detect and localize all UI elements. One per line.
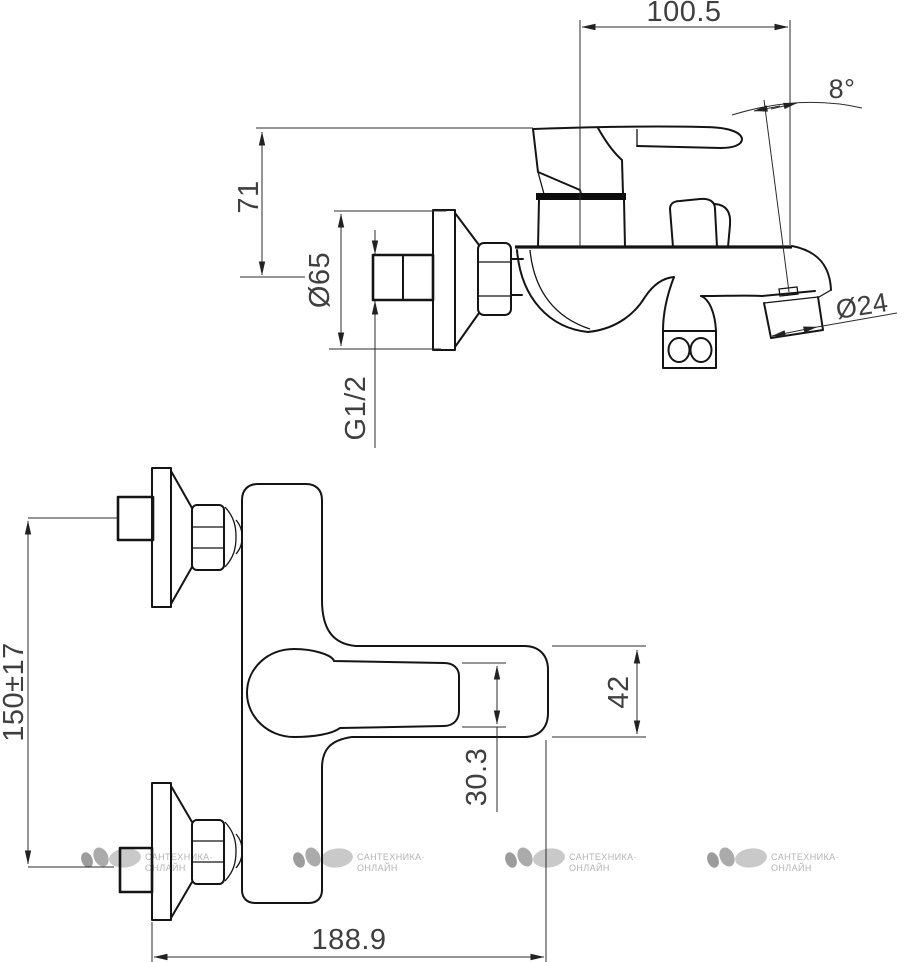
watermark-text-line1: САНТЕХНИКА·: [771, 852, 839, 862]
front-handle-lever: [247, 649, 459, 737]
dim-label-inlet-spacing: 150±17: [0, 642, 30, 742]
cartridge-seam-band: [536, 193, 626, 200]
body-bowl-outer: [517, 250, 674, 332]
aerator-rim-edge: [764, 297, 818, 303]
dim-label-connection-thread: G1/2: [340, 376, 372, 441]
watermark-text-line1: САНТЕХНИКА·: [145, 852, 213, 862]
handle-left-edge: [533, 129, 581, 194]
side-view: [373, 127, 831, 368]
extension-lines: [329, 211, 446, 349]
watermark-text-line1: САНТЕХНИКА·: [569, 852, 637, 862]
watermark-text-line2: ОНЛАЙН: [771, 862, 812, 873]
hex-nut-facets-side: [479, 262, 510, 296]
dim-spout-reach: 100.5: [580, 0, 790, 247]
escutcheon-top: [152, 468, 171, 607]
dim-label-spout-reach: 100.5: [646, 0, 721, 28]
dim-spout-angle: 8°: [732, 74, 862, 292]
escutcheon-cone-side: [455, 213, 479, 347]
spout-aerator-joint: [819, 290, 831, 297]
body-bowl-inner: [530, 250, 590, 329]
watermark-logo-icon: [705, 845, 768, 870]
shower-outlet: [663, 331, 716, 368]
handle-foot-line: [538, 172, 544, 194]
dim-label-handle-height: 71: [233, 180, 265, 213]
body-underside: [517, 250, 762, 332]
angle-arc: [732, 102, 862, 115]
escutcheon-side: [433, 210, 455, 350]
hex-nut-top: [192, 505, 224, 570]
watermark-text-line2: ОНЛАЙН: [569, 862, 610, 873]
drawing-svg: САНТЕХНИКА· ОНЛАЙН САНТЕХНИКА· ОНЛАЙН СА…: [0, 0, 904, 962]
diverter-knob: [670, 199, 730, 247]
watermark: САНТЕХНИКА· ОНЛАЙН: [291, 845, 425, 873]
outlet-right-slope: [701, 296, 716, 331]
watermark-text-line2: ОНЛАЙН: [357, 862, 398, 873]
cartridge-collar: [538, 200, 625, 247]
dim-label-aerator-diameter: Ø24: [834, 287, 891, 325]
escutcheon-cone-top: [171, 471, 192, 604]
dim-label-escutcheon-diameter: Ø65: [304, 252, 336, 308]
front-body-outline: [242, 484, 548, 903]
wall-stub-top: [118, 497, 153, 540]
shower-outlet-port-right: [691, 338, 712, 362]
dim-label-spout-body-height: 42: [603, 675, 635, 708]
dim-spout-body-height: 42: [552, 646, 646, 737]
dim-label-handle-end-width: 30.3: [461, 748, 493, 806]
shower-outlet-port-left: [669, 338, 690, 362]
watermark-logo-icon: [503, 845, 566, 870]
watermark-text-line1: САНТЕХНИКА·: [357, 852, 425, 862]
extension-lines: [462, 663, 506, 727]
dim-label-overall-length: 188.9: [311, 924, 386, 956]
hex-nut-side: [478, 243, 511, 315]
extension-lines: [580, 20, 790, 247]
dimension-layer: 100.5 8° 71 Ø65 G1/2: [0, 0, 897, 962]
connector-sleeve-top-outer: [225, 507, 236, 567]
connector-sleeve-bottom-outer: [225, 822, 236, 881]
angle-reference-line: [764, 100, 789, 292]
watermark: САНТЕХНИКА· ОНЛАЙН: [503, 845, 637, 873]
inlet-top: [118, 468, 242, 607]
hex-nut-facets-top: [193, 527, 223, 548]
spout-curve: [792, 246, 831, 290]
extension-lines: [28, 518, 118, 867]
dim-label-spout-angle: 8°: [829, 74, 856, 104]
outlet-left-slope: [663, 277, 674, 331]
handle-side: [533, 127, 742, 194]
technical-drawing-sheet: САНТЕХНИКА· ОНЛАЙН САНТЕХНИКА· ОНЛАЙН СА…: [0, 0, 904, 962]
diverter-knob-body: [670, 199, 717, 247]
watermark: САНТЕХНИКА· ОНЛАЙН: [705, 845, 839, 873]
dim-connection-thread: G1/2: [340, 230, 375, 448]
spout-end: [762, 246, 831, 338]
dim-inlet-spacing: 150±17: [0, 518, 118, 867]
handle-neck-curve: [598, 128, 623, 194]
